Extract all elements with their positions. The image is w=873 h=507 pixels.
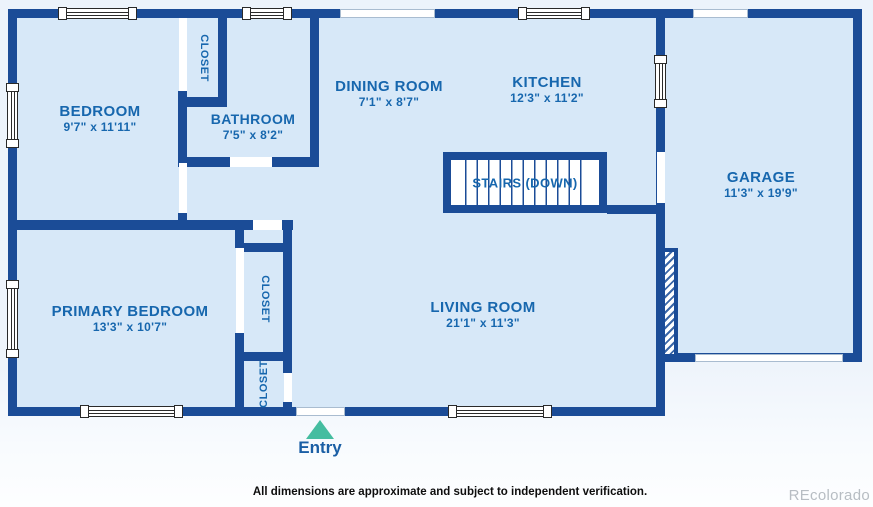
door-bathroom — [230, 157, 272, 167]
wall-cubby-divider — [244, 243, 283, 252]
door-primary-closet — [236, 248, 244, 333]
door-bedroom — [179, 163, 187, 213]
watermark: REcolorado — [789, 487, 870, 504]
door-hall-closet — [253, 220, 282, 230]
wall-bedroom-divider — [8, 220, 253, 230]
entry-arrow-icon — [306, 420, 334, 439]
primary-left-window — [7, 280, 18, 358]
closet-lower-label: CLOSET — [258, 360, 270, 408]
door-kitchen-garage — [657, 152, 665, 203]
wall-bathroom-right — [310, 9, 319, 167]
closet-middle-label: CLOSET — [259, 275, 271, 323]
kitchen-label: KITCHEN 12'3" x 11'2" — [510, 74, 584, 106]
dining-room-label: DINING ROOM 7'1" x 8'7" — [335, 78, 443, 110]
living-room-window — [448, 406, 552, 417]
wall-closet-right-upper — [283, 220, 292, 373]
stairs-down: STAIRS (DOWN) — [443, 152, 607, 213]
bedroom-top-window — [58, 8, 137, 19]
kitchen-window — [518, 8, 590, 19]
dining-window — [340, 9, 435, 18]
stairs-label: STAIRS (DOWN) — [451, 175, 599, 190]
door-closet-top — [179, 18, 187, 91]
floor-plan: STAIRS (DOWN) BEDROOM 9'7" x 11'11" BATH… — [0, 0, 873, 507]
entry-label: Entry — [298, 438, 341, 458]
wall-closet-top-bottom — [178, 97, 227, 107]
wall-garage-right — [853, 9, 862, 362]
bedroom-label: BEDROOM 9'7" x 11'11" — [59, 103, 140, 135]
wall-closet-right-lower — [283, 402, 292, 416]
bedroom-left-window — [7, 83, 18, 148]
garage-entry-hatch — [661, 248, 678, 358]
wall-closet-left-lower — [235, 333, 244, 416]
wall-closet-top-right — [218, 9, 227, 107]
garage-door-opening — [695, 354, 843, 362]
door-lower-closet — [284, 373, 292, 402]
garage-top-opening — [693, 9, 748, 18]
wall-stairs-link — [607, 205, 665, 214]
kitchen-side-window — [655, 55, 666, 108]
disclaimer-text: All dimensions are approximate and subje… — [253, 486, 647, 498]
closet-top-label: CLOSET — [198, 34, 210, 82]
wall-closet-left-upper — [235, 225, 244, 248]
living-room-label: LIVING ROOM 21'1" x 11'3" — [430, 299, 535, 331]
bathroom-label: BATHROOM 7'5" x 8'2" — [211, 111, 296, 143]
primary-bottom-window — [80, 406, 183, 417]
primary-bedroom-label: PRIMARY BEDROOM 13'3" x 10'7" — [52, 303, 209, 335]
entry-door-opening — [296, 407, 345, 416]
garage-label: GARAGE 11'3" x 19'9" — [724, 169, 798, 201]
bathroom-window — [242, 8, 292, 19]
wall-bathroom-bottom-right — [272, 157, 318, 167]
